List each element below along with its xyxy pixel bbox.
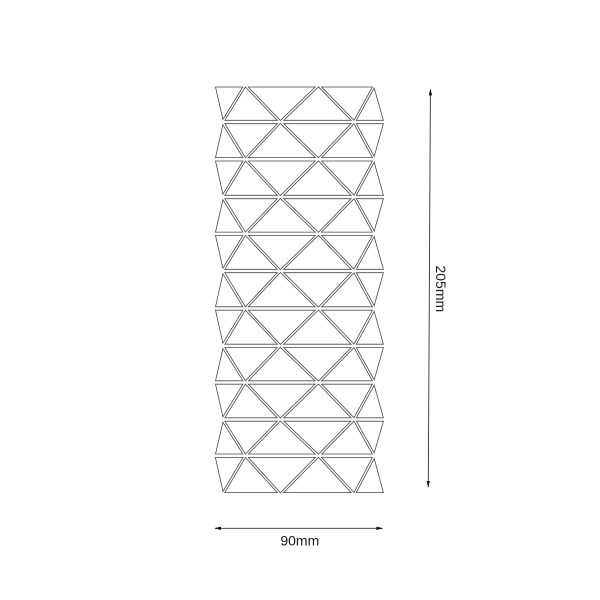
svg-text:205mm: 205mm: [433, 265, 449, 312]
svg-text:90mm: 90mm: [280, 533, 319, 549]
